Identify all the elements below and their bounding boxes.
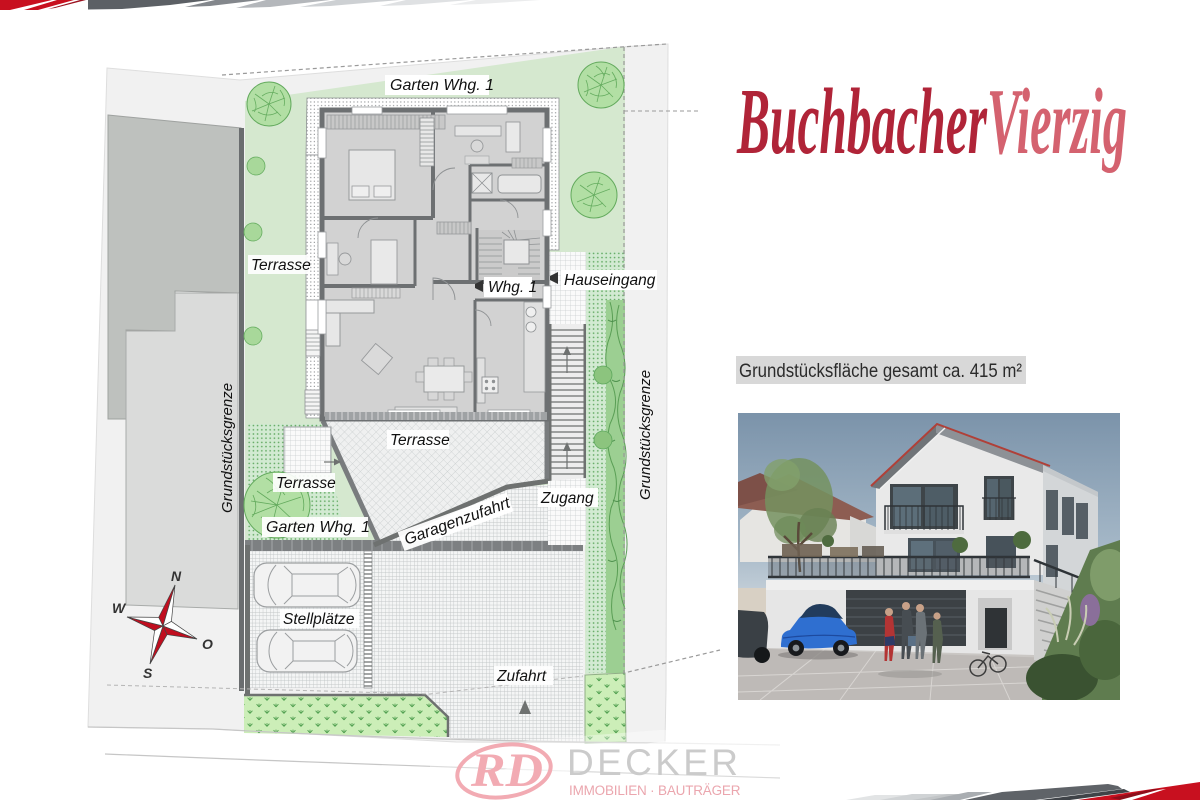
svg-text:Terrasse: Terrasse — [276, 475, 336, 492]
svg-text:Garten Whg. 1: Garten Whg. 1 — [266, 519, 370, 536]
svg-text:Grundstücksfläche gesamt ca. 4: Grundstücksfläche gesamt ca. 415 m² — [739, 361, 1022, 382]
svg-text:Whg. 1: Whg. 1 — [488, 279, 537, 296]
svg-text:Zugang: Zugang — [540, 490, 594, 507]
svg-text:Grundstücksgrenze: Grundstücksgrenze — [219, 383, 236, 513]
svg-text:RD: RD — [470, 744, 543, 797]
svg-text:Garagenzufahrt: Garagenzufahrt — [402, 494, 513, 548]
svg-text:DECKER: DECKER — [567, 742, 744, 783]
svg-text:Garten Whg. 1: Garten Whg. 1 — [390, 77, 494, 94]
svg-text:Terrasse: Terrasse — [251, 257, 311, 274]
svg-text:Grundstücksgrenze: Grundstücksgrenze — [637, 370, 654, 500]
svg-text:Vierzig: Vierzig — [987, 70, 1127, 174]
svg-text:Terrasse: Terrasse — [390, 432, 450, 449]
svg-text:IMMOBILIEN · BAUTRÄGER: IMMOBILIEN · BAUTRÄGER — [569, 783, 742, 798]
svg-text:Zufahrt: Zufahrt — [496, 668, 547, 685]
svg-text:Stellplätze: Stellplätze — [283, 611, 355, 628]
svg-text:Hauseingang: Hauseingang — [564, 272, 656, 289]
svg-text:Buchbacher: Buchbacher — [736, 70, 987, 174]
